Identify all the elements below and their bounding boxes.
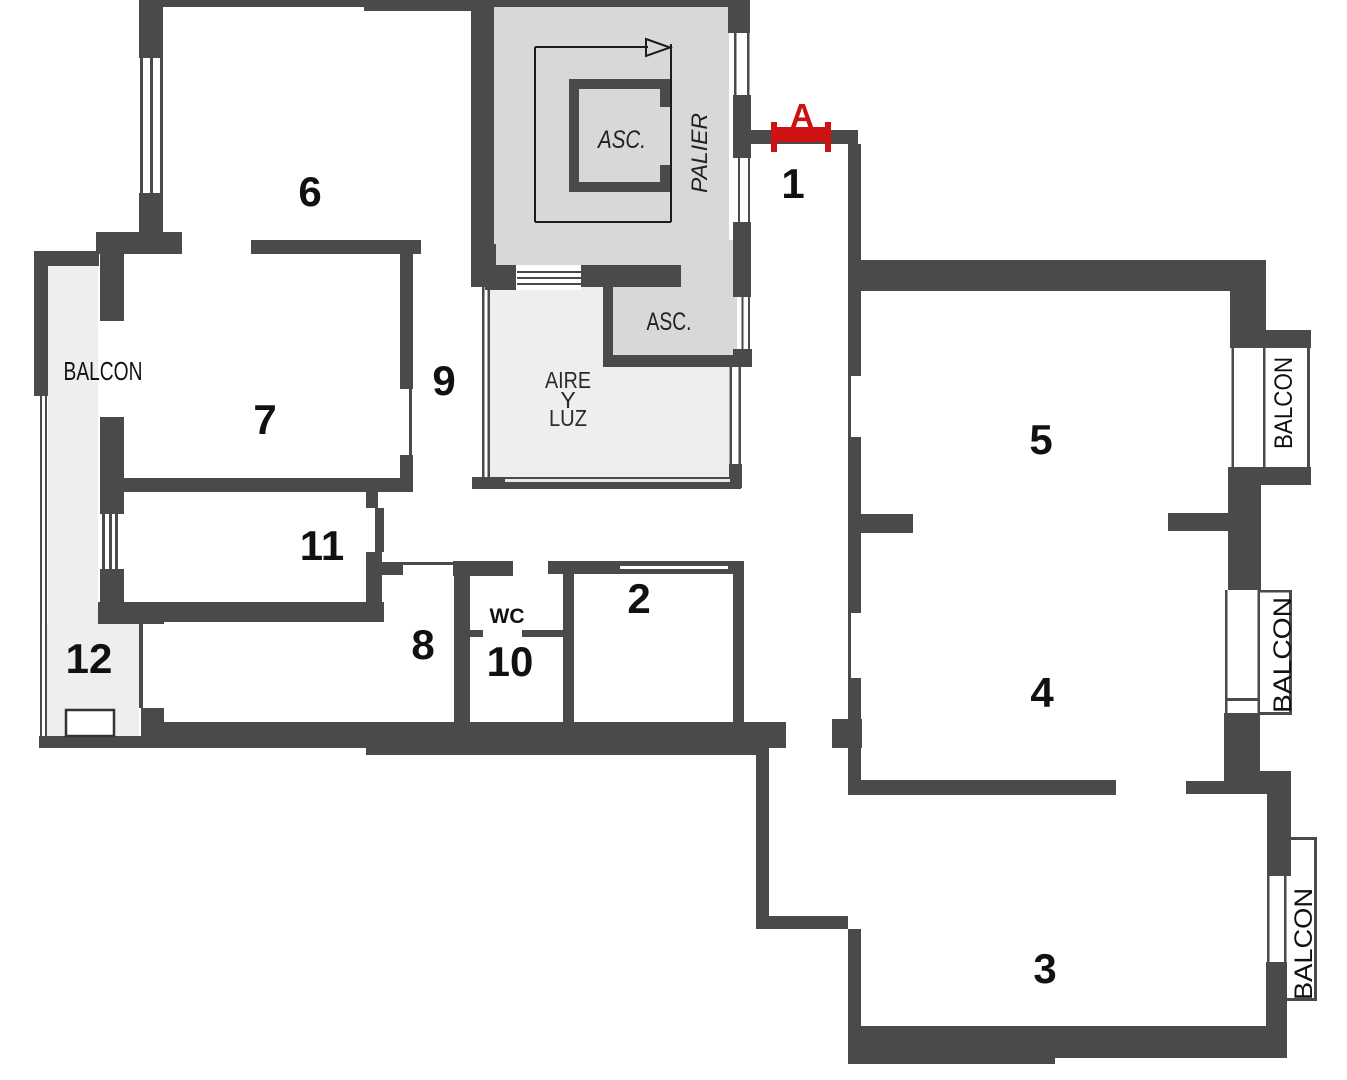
svg-text:ASC.: ASC. [596, 126, 646, 154]
svg-text:BALCON: BALCON [64, 356, 143, 386]
svg-text:A: A [790, 97, 814, 134]
svg-text:10: 10 [487, 638, 534, 685]
svg-text:5: 5 [1029, 416, 1052, 463]
svg-text:11: 11 [300, 522, 344, 569]
svg-text:4: 4 [1030, 669, 1054, 716]
svg-text:BALCON: BALCON [1270, 357, 1298, 449]
svg-text:6: 6 [298, 168, 321, 215]
svg-text:9: 9 [432, 357, 455, 404]
svg-text:BALCON: BALCON [1269, 597, 1297, 713]
svg-text:WC: WC [490, 605, 525, 628]
svg-text:BALCON: BALCON [1290, 888, 1318, 1000]
svg-text:1: 1 [781, 160, 804, 207]
svg-text:8: 8 [411, 621, 434, 668]
svg-text:12: 12 [66, 635, 113, 682]
svg-text:3: 3 [1033, 945, 1056, 992]
svg-text:PALIER: PALIER [687, 113, 712, 193]
svg-text:2: 2 [627, 575, 650, 622]
svg-text:ASC.: ASC. [647, 308, 692, 336]
svg-text:LUZ: LUZ [549, 405, 587, 431]
svg-text:7: 7 [253, 396, 276, 443]
